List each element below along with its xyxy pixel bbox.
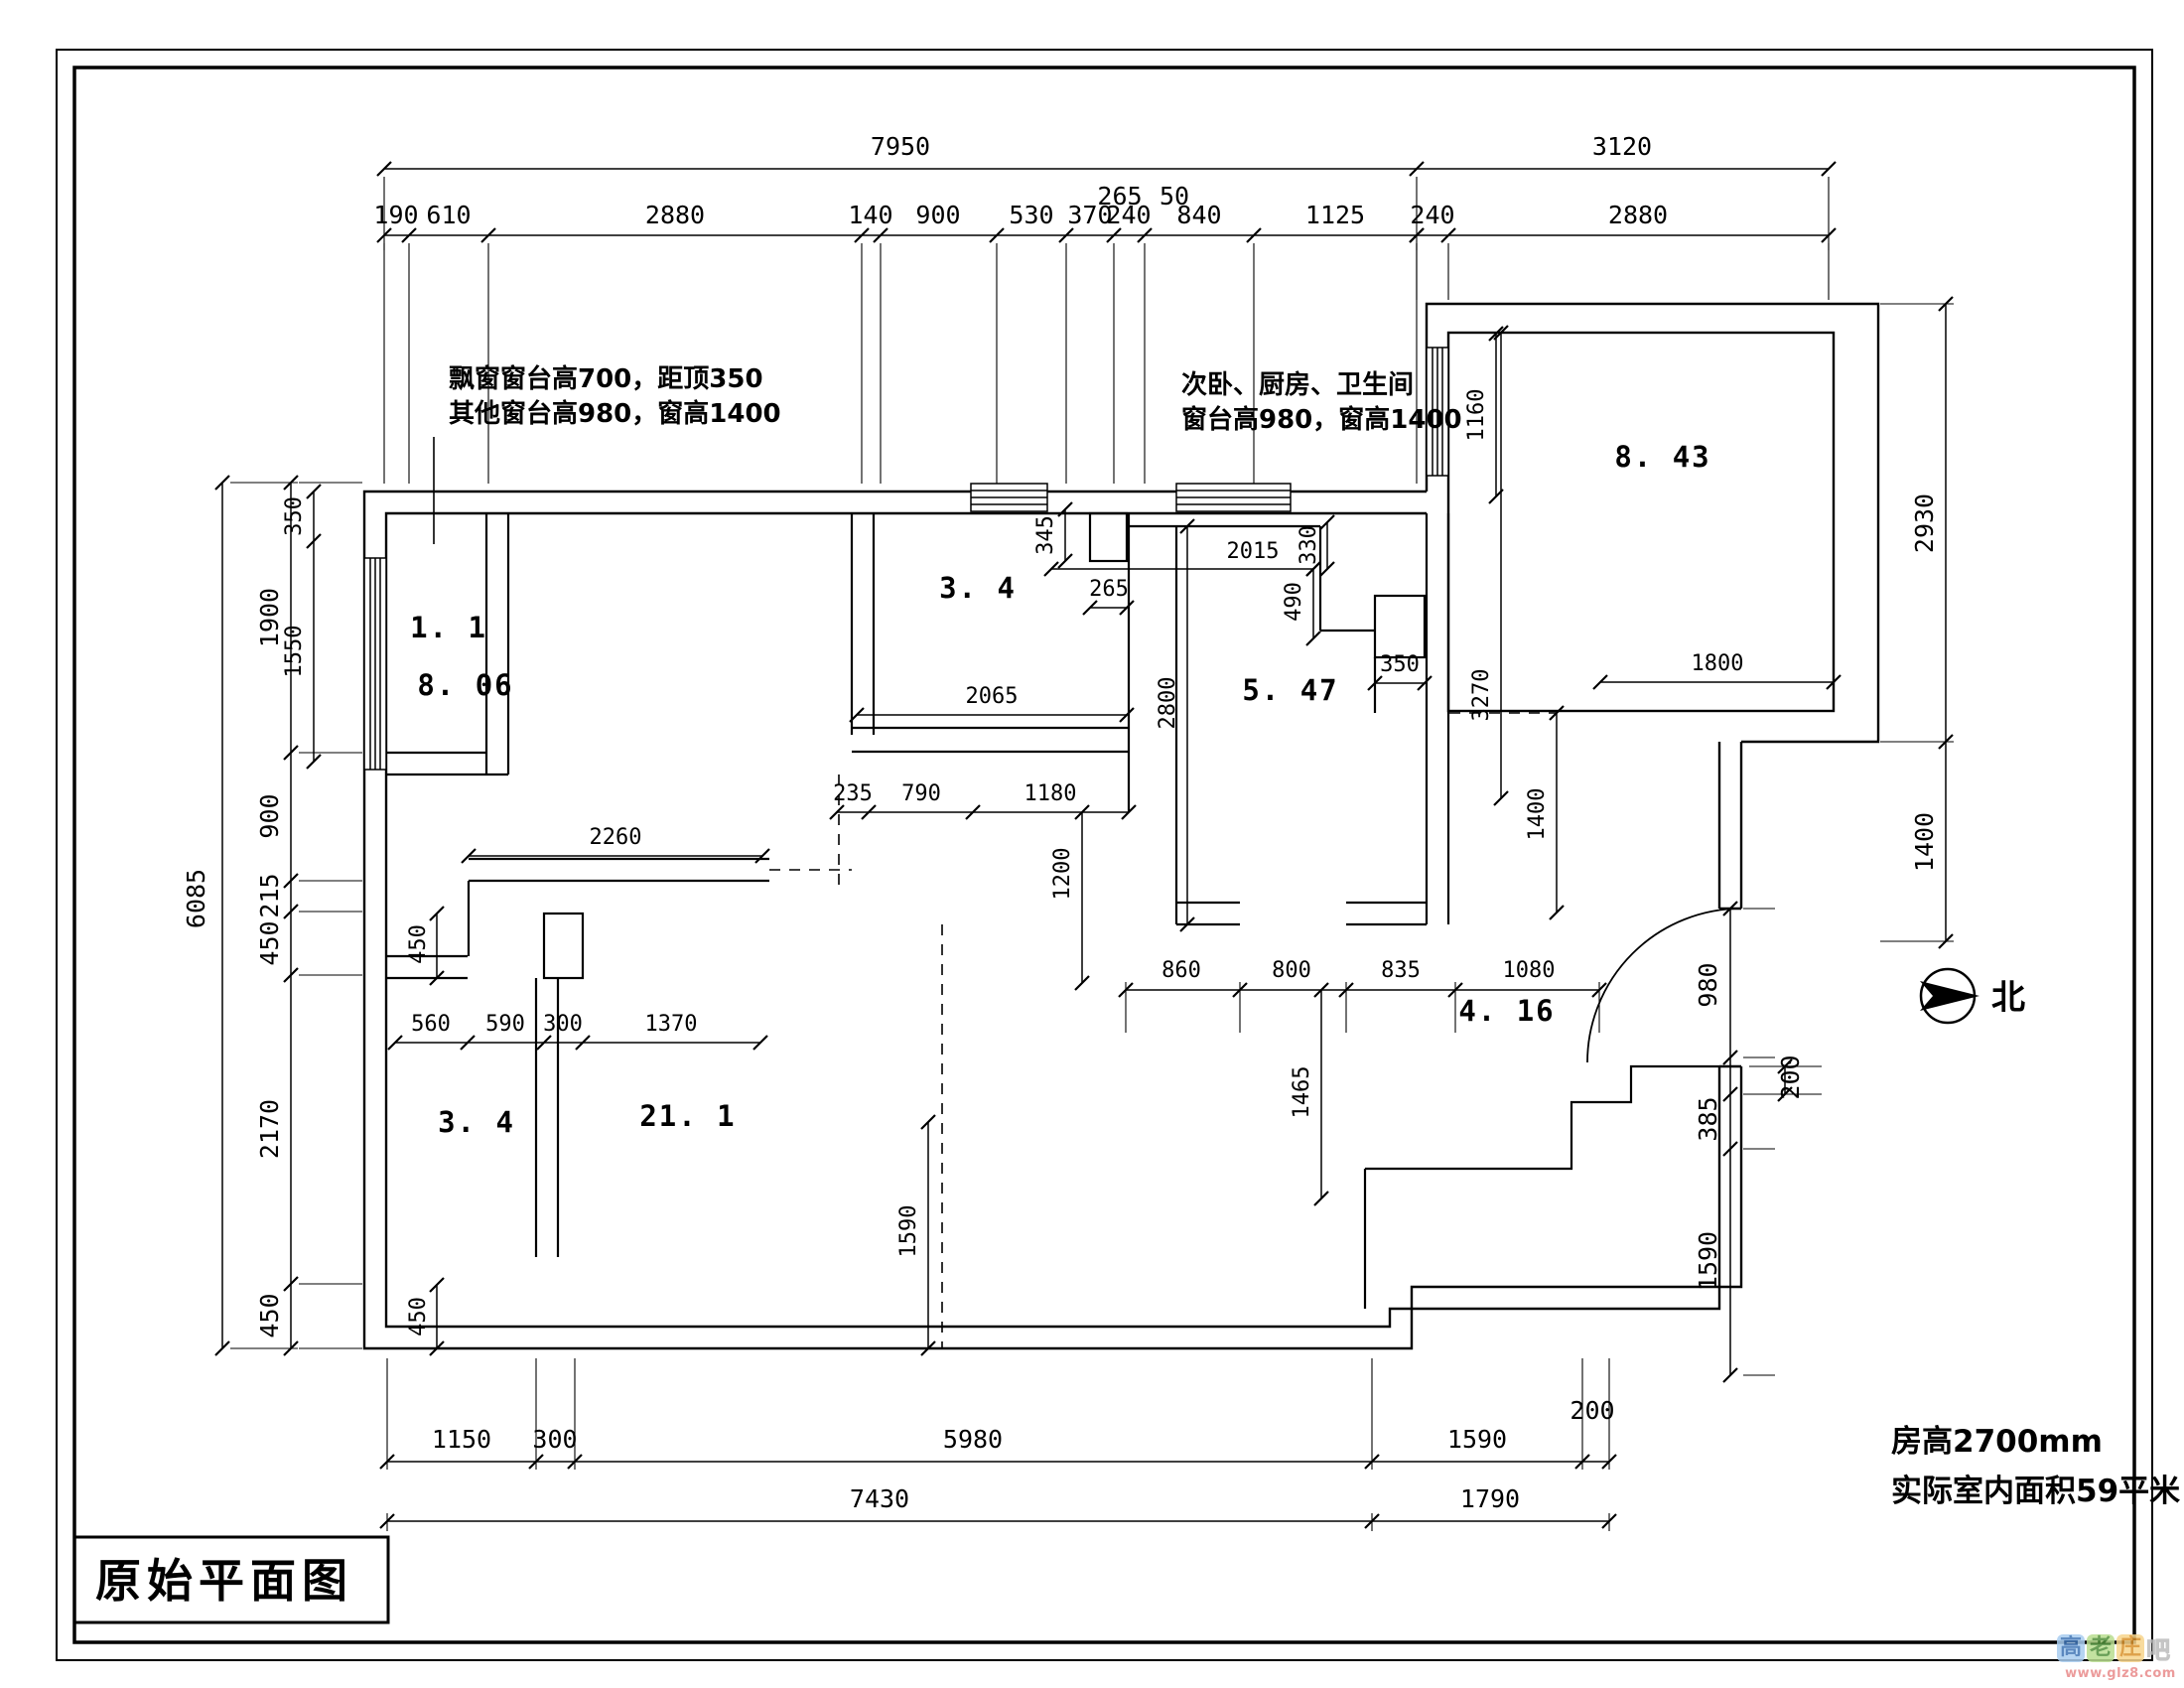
room-area-label: 3. 4 [438,1105,515,1139]
dim-chain [1320,515,1334,576]
dim-label: 450 [255,1293,284,1337]
dim-label: 1200 [1050,848,1075,901]
room-area-label: 4. 16 [1458,994,1555,1028]
dim-chain [850,708,1134,722]
annotation-texts: 飘窗窗台高700，距顶350其他窗台高980，窗高1400次卧、厨房、卫生间窗台… [449,363,1462,435]
room-area-label: 8. 43 [1614,440,1710,474]
drawing-sheet: 7950312026550190610288014090053037024084… [0,0,2184,1688]
dim-label: 240 [1410,201,1454,229]
dim-label: 5980 [943,1425,1003,1454]
room-area-label: 8. 06 [417,668,513,702]
wall-stub [544,914,583,978]
dim-chain [430,907,444,985]
dim-chain [1180,519,1194,931]
watermark-url: www.glz8.com [2057,1666,2184,1681]
dim-label: 450 [406,924,431,964]
dim-chain [1083,601,1134,615]
dim-label: 1150 [432,1425,491,1454]
dim-label: 590 [485,1012,525,1037]
room-area-label: 5. 47 [1242,673,1338,707]
annotation-text: 飘窗窗台高700，距顶350 [449,363,763,394]
dim-label: 1590 [896,1205,921,1258]
wall-corridor [1427,513,1448,924]
dim-chain [1368,676,1432,690]
dim-label: 980 [1694,962,1722,1007]
dim-label: 1800 [1692,651,1744,676]
dim-label: 1080 [1503,958,1556,983]
dim-label: 385 [1694,1096,1722,1141]
dim-label: 900 [915,201,960,229]
annotation-text: 其他窗台高980，窗高1400 [449,398,781,429]
dim-label: 1180 [1024,781,1077,806]
wall-mid [386,859,769,1257]
watermark-char-3: 庄 [2116,1634,2144,1662]
dim-label: 300 [543,1012,583,1037]
dim-label: 2260 [590,825,642,850]
dashed-opening-lines [769,713,1557,1348]
dim-label: 1400 [1525,788,1550,841]
dim-label: 235 [833,781,873,806]
watermark: 高 老 庄 吧 www.glz8.com [2057,1630,2184,1681]
duct-shaft [1090,513,1127,561]
dim-label: 900 [255,793,284,838]
dim-label: 450 [406,1297,431,1336]
room-area-label: 21. 1 [639,1099,736,1133]
dim-chain [1314,983,1328,1205]
dim-label: 300 [532,1425,577,1454]
dim-label: 350 [1380,652,1420,677]
dim-label: 490 [1282,582,1306,622]
dim-label: 790 [901,781,941,806]
dim-label: 350 [282,496,307,536]
dim-label: 800 [1272,958,1311,983]
dim-chain [377,228,1424,484]
watermark-char-1: 高 [2057,1634,2085,1662]
annotation-text: 次卧、厨房、卫生间 [1181,370,1414,400]
dim-label: 200 [1776,1055,1805,1099]
dim-label: 1465 [1290,1066,1314,1119]
dim-chain [1306,562,1320,645]
dim-label: 1790 [1460,1484,1520,1513]
dim-label: 2015 [1227,539,1280,564]
dim-label: 1590 [1447,1425,1507,1454]
duct-shaft-2 [1375,596,1425,657]
dim-chain [830,805,1136,819]
dim-label: 860 [1161,958,1201,983]
room-area-label: 3. 4 [939,571,1017,605]
wall-entry-steps [1365,1066,1719,1309]
floor-plan-canvas: 7950312026550190610288014090053037024084… [0,0,2184,1688]
dim-label: 2065 [966,684,1019,709]
block-wall-outer [1427,304,1878,742]
dim-label: 7950 [871,132,930,161]
dim-chain [380,1513,1616,1531]
dim-label: 1550 [282,626,307,678]
dim-label: 7430 [850,1484,909,1513]
dim-label: 3270 [1469,669,1494,722]
dim-label: 3120 [1592,132,1652,161]
dim-label: 1370 [645,1012,698,1037]
watermark-tiles: 高 老 庄 吧 [2057,1630,2184,1665]
dim-label: 200 [1570,1396,1614,1425]
wall-bath [852,513,1129,812]
drawing-title: 原始平面图 [95,1554,353,1608]
wall-outline-outer [364,492,1741,1348]
dim-chain [1593,675,1841,689]
annotation-text: 窗台高980，窗高1400 [1181,404,1462,435]
dim-chain [1410,228,1836,300]
dim-chain [430,1278,444,1355]
dim-label: 6085 [182,869,210,928]
dim-label: 1900 [255,588,284,647]
interior-walls [386,513,1719,1309]
north-arrow: 北 [1920,969,2025,1023]
wall-outline-inner [386,513,1741,1327]
dim-label: 2800 [1156,677,1180,730]
dim-label: 1160 [1464,389,1489,442]
dim-chain [1044,562,1320,576]
dim-label: 215 [255,873,284,917]
note-floor-area: 实际室内面积59平米 [1891,1474,2180,1509]
dim-label: 1400 [1910,812,1939,872]
dim-chain [462,849,769,863]
dim-chain [388,1036,767,1050]
dim-label: 840 [1176,201,1221,229]
dim-label: 530 [1009,201,1053,229]
dim-label: 265 [1089,577,1129,602]
dim-label: 190 [373,201,418,229]
north-pointer-icon [1920,981,1979,1011]
dim-label: 2880 [645,201,705,229]
watermark-char-2: 老 [2087,1634,2115,1662]
dim-label: 1590 [1694,1231,1722,1291]
sheet-border-outer [57,50,2152,1660]
dim-label: 610 [426,201,471,229]
dim-label: 1125 [1305,201,1365,229]
dimension-labels: 7950312026550190610288014090053037024084… [182,132,1939,1513]
watermark-suffix: 吧 [2146,1630,2170,1665]
dim-chain [921,1115,935,1355]
dim-label: 2170 [255,1099,284,1159]
dim-chain [1075,805,1089,990]
dim-label: 835 [1381,958,1421,983]
dim-chain [307,485,321,769]
dim-chain [1723,902,1775,1382]
block-wall-inner [1448,333,1834,711]
dim-label: 2880 [1608,201,1668,229]
note-ceiling-height: 房高2700mm [1891,1424,2103,1460]
dim-label: 450 [255,920,284,965]
dim-chain [1550,706,1564,919]
room-area-label: 1. 1 [410,611,487,644]
dim-label: 240 [1106,201,1151,229]
dim-chain [284,476,362,1355]
dim-label: 2930 [1910,493,1939,553]
dim-label: 330 [1297,525,1321,565]
dim-label: 560 [411,1012,451,1037]
north-label: 北 [1991,978,2025,1018]
dim-label: 345 [1033,515,1058,555]
dim-label: 140 [848,201,892,229]
